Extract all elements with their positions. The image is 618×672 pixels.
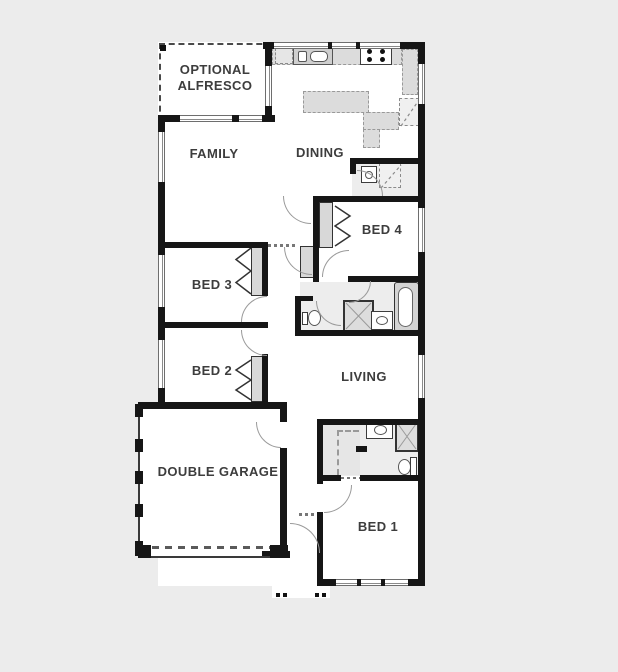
wall xyxy=(295,330,424,336)
porch-post xyxy=(283,593,287,597)
bed4-window xyxy=(418,208,425,252)
wall xyxy=(262,354,268,402)
vanity-basin xyxy=(376,316,388,325)
family-north-window2 xyxy=(239,115,262,122)
porch-post xyxy=(315,593,319,597)
room-label-bed4: BED 4 xyxy=(362,222,402,238)
garage-corner xyxy=(138,545,151,558)
bed4-wardrobe xyxy=(319,202,333,248)
wall xyxy=(158,242,268,248)
porch-post xyxy=(322,593,326,597)
ensuite-toilet-tank xyxy=(410,457,417,476)
wall xyxy=(418,398,425,586)
bathroom-vanity xyxy=(371,311,393,330)
garage-corner xyxy=(270,545,288,558)
entry-opening-dotted xyxy=(299,513,315,516)
bed1-window xyxy=(336,579,408,586)
wall xyxy=(323,475,341,481)
room-label-double-garage: DOUBLE GARAGE xyxy=(158,464,279,480)
wall xyxy=(350,158,356,174)
wall xyxy=(158,402,287,409)
bed2-window xyxy=(158,340,165,388)
window-mullion xyxy=(357,579,361,586)
burner xyxy=(380,49,385,54)
dishwasher xyxy=(275,48,293,64)
room-label-family: FAMILY xyxy=(190,146,239,162)
alfresco-side-window xyxy=(265,66,272,106)
window-mullion xyxy=(328,42,332,49)
wall xyxy=(418,42,425,64)
family-window xyxy=(158,132,165,182)
burner xyxy=(367,57,372,62)
wall xyxy=(295,296,313,301)
ensuite-basin xyxy=(374,425,387,435)
wall xyxy=(295,296,301,336)
bed3-wardrobe-chevron-icon xyxy=(231,246,252,296)
kitchen-return-bench xyxy=(363,112,399,130)
kitchen-window xyxy=(274,42,402,49)
alfresco-line1: OPTIONAL xyxy=(180,62,250,77)
linen-cupboard xyxy=(379,163,401,188)
wall xyxy=(360,475,424,481)
garage-pier xyxy=(135,404,143,417)
floor-plan: OPTIONAL ALFRESCO FAMILY DINING BED 4 BE… xyxy=(0,0,618,672)
family-north-window xyxy=(180,115,232,122)
bed2-wardrobe-chevron-icon xyxy=(231,358,252,402)
pantry-shelf-lines xyxy=(400,99,420,127)
wall xyxy=(158,115,165,132)
wall xyxy=(262,242,268,296)
wall xyxy=(418,252,425,355)
ensuite-shower xyxy=(395,421,419,452)
garage-door-line xyxy=(152,546,270,549)
kitchen-side-window xyxy=(418,64,425,104)
wall xyxy=(280,448,287,551)
bed4-wardrobe-chevron-icon xyxy=(334,204,355,248)
shower-x xyxy=(397,423,417,450)
room-label-bed3: BED 3 xyxy=(192,277,232,293)
wall xyxy=(356,446,367,452)
living-window xyxy=(418,355,425,398)
bathroom-shower xyxy=(343,300,374,332)
wall xyxy=(158,322,268,328)
garage-pier xyxy=(135,471,143,484)
room-label-living: LIVING xyxy=(341,369,387,385)
wall xyxy=(313,196,424,202)
burner xyxy=(380,57,385,62)
wall xyxy=(317,419,424,425)
room-label-bed2: BED 2 xyxy=(192,363,232,379)
room-label-optional-alfresco: OPTIONAL ALFRESCO xyxy=(178,62,253,94)
sink-bowl-small xyxy=(298,51,307,62)
wall xyxy=(313,196,319,282)
wall xyxy=(265,42,272,66)
sink-bowl-large xyxy=(310,51,328,62)
corner-pantry xyxy=(399,98,419,126)
garage-pier xyxy=(135,439,143,452)
garage-wall-line xyxy=(138,556,288,558)
porch-post xyxy=(276,593,280,597)
alfresco-line2: ALFRESCO xyxy=(178,78,253,93)
bathtub-inner xyxy=(398,287,413,327)
wall xyxy=(418,104,425,208)
bed3-window xyxy=(158,255,165,307)
robe-opening-dotted xyxy=(341,477,360,479)
walk-in-robe-dashed xyxy=(337,430,359,475)
room-label-dining: DINING xyxy=(296,145,344,161)
wall xyxy=(280,409,287,422)
wall xyxy=(408,579,425,586)
burner xyxy=(367,49,372,54)
window-mullion xyxy=(232,115,239,122)
window-mullion xyxy=(356,42,360,49)
garage-pier xyxy=(135,504,143,517)
shower-x xyxy=(345,302,372,330)
window-mullion xyxy=(381,579,385,586)
alfresco-post xyxy=(160,45,166,51)
wall xyxy=(265,106,272,118)
fridge-space xyxy=(402,49,418,95)
room-label-bed1: BED 1 xyxy=(358,519,398,535)
bathtub xyxy=(394,282,419,332)
wall xyxy=(350,158,418,164)
island-bench xyxy=(303,91,369,113)
linen-diagonal xyxy=(380,164,402,189)
kitchen-return-bench2 xyxy=(363,129,380,148)
